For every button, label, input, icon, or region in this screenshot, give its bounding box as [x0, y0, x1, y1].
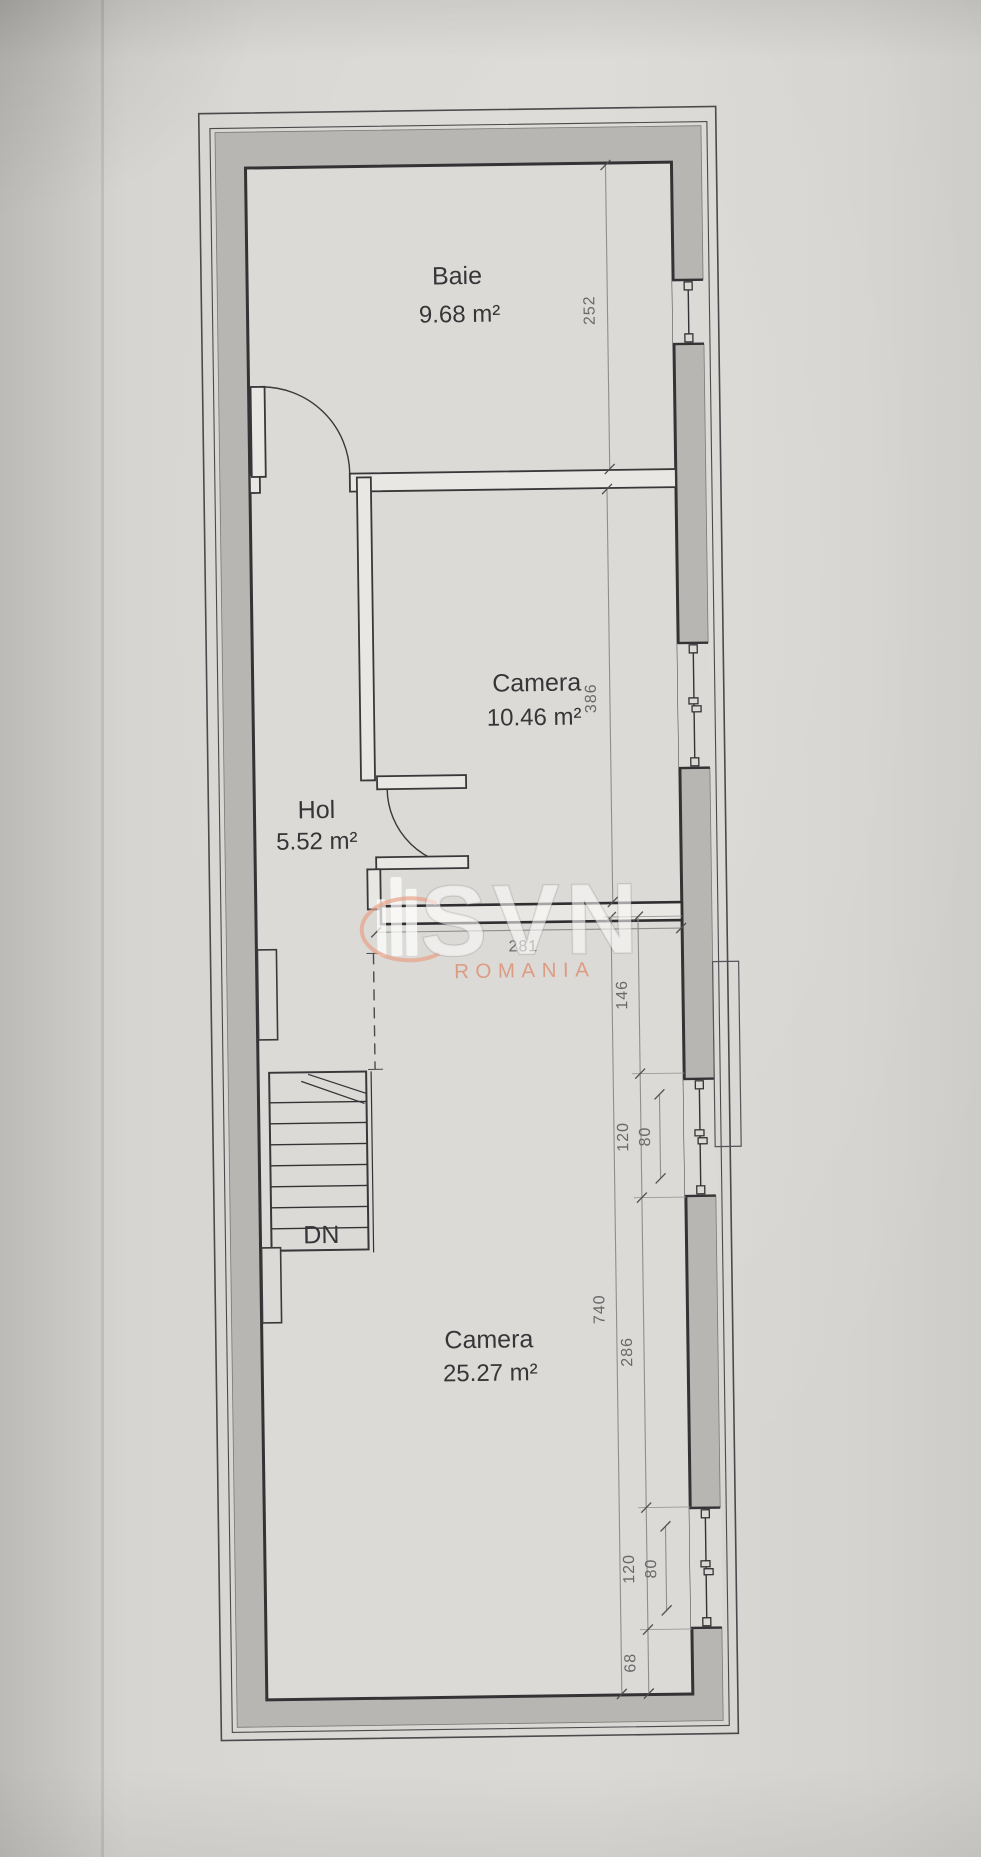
window-right-2 [677, 643, 711, 768]
watermark-region: ROMANIA [454, 958, 595, 983]
svg-text:80: 80 [643, 1559, 660, 1579]
room-area-camera-upper: 10.46 m² [487, 703, 582, 731]
window-right-4 [689, 1508, 723, 1628]
room-label-baie: Baie [432, 262, 482, 291]
wall-hol-camera [357, 477, 375, 780]
svg-text:80: 80 [637, 1127, 654, 1147]
room-area-camera-lower: 25.27 m² [443, 1359, 538, 1387]
radiator [262, 1248, 282, 1323]
radiator [257, 950, 277, 1040]
stairs-direction-label: DN [303, 1221, 339, 1250]
floor-plan: DN 252 386 281 740 [0, 0, 981, 1857]
window-right-3 [683, 1079, 717, 1196]
svg-text:120: 120 [621, 1554, 638, 1584]
room-label-camera-lower: Camera [444, 1325, 533, 1354]
window-right-1 [672, 280, 705, 344]
svg-text:146: 146 [614, 980, 631, 1010]
svg-text:386: 386 [583, 683, 600, 713]
room-area-baie: 9.68 m² [419, 301, 501, 329]
facade-ledge [713, 961, 742, 1146]
door-hol-leaf [377, 775, 466, 789]
stairs: DN [269, 1071, 374, 1253]
svg-text:252: 252 [581, 295, 598, 325]
door-baie-leaf [251, 387, 266, 477]
svg-text:740: 740 [591, 1294, 608, 1324]
svg-text:286: 286 [619, 1337, 636, 1367]
room-label-hol: Hol [297, 796, 335, 825]
svg-text:120: 120 [615, 1122, 632, 1152]
room-area-hol: 5.52 m² [276, 828, 358, 856]
svg-text:68: 68 [622, 1653, 639, 1673]
room-label-camera-upper: Camera [492, 668, 581, 697]
